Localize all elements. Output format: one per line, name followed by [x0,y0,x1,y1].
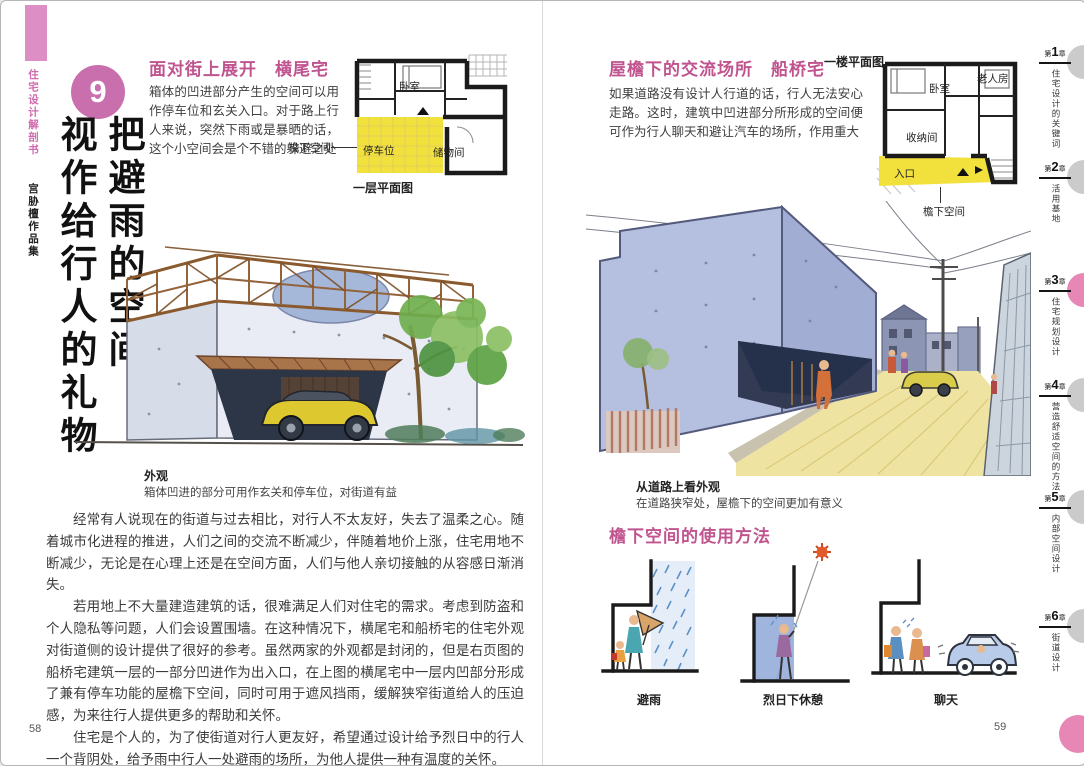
tab-1-label: 住宅设计的关键词 [1050,69,1062,149]
series-title: 住宅设计解剖书 [27,69,39,157]
tab-6-label: 街道设计 [1050,633,1062,673]
tab-4-label: 营造舒适空间的方法 [1050,402,1062,492]
house-illustration-drawing [69,199,531,463]
sidebar-tab-chapter-2: 第2章 活用基地 [1039,158,1073,224]
body-text: 经常有人说现在的街道与过去相比，对行人不太友好，失去了温柔之心。随着城市化进程的… [46,509,524,766]
plan-left-eave-label: 檐下空间 [289,140,331,155]
page-number-left: 58 [29,723,41,735]
tab-5-label: 内部空间设计 [1050,514,1062,574]
plan-right-entrance-label: 入口 [894,166,915,181]
tab-3-header: 第3章 [1039,271,1071,292]
chapter-number-badge: 9 [71,65,125,119]
plan-left-leader-line [331,147,357,148]
usage-rain-drawing [599,553,704,688]
usage-caption-rain: 避雨 [619,691,679,708]
sidebar-tab-chapter-3: 第3章 住宅规划设计 [1039,271,1073,357]
tab-5-header: 第5章 [1039,488,1071,509]
plan-right-storage-label: 收纳间 [906,130,938,145]
page-number-right: 59 [994,721,1006,733]
plan-left-caption: 一层平面图 [353,179,413,196]
usage-illustration-sun [736,539,856,689]
street-illustration-drawing [586,201,1031,476]
body-paragraph: 住宅是个人的，为了使街道对行人更友好，希望通过设计给予烈日中的行人一个背阴处，给… [46,727,524,766]
floor-plan-left [345,51,523,183]
sidebar-tab-chapter-5: 第5章 内部空间设计 [1039,488,1073,574]
usage-caption-chat: 聊天 [916,691,976,708]
usage-illustration-chat [869,553,1019,688]
usage-sun-drawing [736,539,856,689]
plan-right-elder-label: 老人房 [977,71,1009,86]
series-subtitle: 宫胁檀作品集 [26,183,41,258]
corner-accent-circle [1059,715,1084,753]
usage-illustration-rain [599,553,704,688]
tab-1-header: 第1章 [1039,43,1071,64]
sidebar-tab-chapter-1: 第1章 住宅设计的关键词 [1039,43,1073,149]
floor-plan-left-drawing [345,51,523,183]
usage-caption-sun: 烈日下休憩 [743,691,843,708]
plan-right-bedroom-label: 卧室 [929,81,950,96]
page-divider [542,1,543,765]
tab-2-label: 活用基地 [1050,184,1062,224]
book-spread: 住宅设计解剖书 宫胁檀作品集 9 把避雨的空间 视作给行人的礼物 面对街上展开 … [0,0,1084,766]
street-illustration [586,201,1031,476]
right-art-caption-title: 从道路上看外观 [636,478,720,495]
tab-2-header: 第2章 [1039,158,1071,179]
entrance-arrow-icon [417,107,429,115]
house-illustration [69,199,531,463]
body-paragraph: 经常有人说现在的街道与过去相比，对行人不太友好，失去了温柔之心。随着城市化进程的… [46,509,524,596]
spine-accent-bar [25,5,47,61]
plan-left-bedroom-label: 卧室 [399,79,420,94]
section-heading-left: 面对街上展开 横尾宅 [149,55,329,80]
plan-left-storage-label: 储物间 [433,145,465,160]
section-heading-right: 屋檐下的交流场所 船桥宅 [609,55,825,80]
plan-left-parking-label: 停车位 [363,143,395,158]
chapter-number: 9 [89,74,106,110]
right-art-caption-text: 在道路狭窄处，屋檐下的空间更加有意义 [636,495,843,511]
tab-3-label: 住宅规划设计 [1050,297,1062,357]
body-paragraph: 若用地上不大量建造建筑的话，很难满足人们对住宅的需求。考虑到防盗和个人隐私等问题… [46,596,524,727]
section-intro-right: 如果道路没有设计人行道的话，行人无法安心走路。这时，建筑中凹进部分所形成的空间便… [609,85,863,142]
left-art-caption-text: 箱体凹进的部分可用作玄关和停车位，对街道有益 [144,484,397,500]
spine-text: 住宅设计解剖书 宫胁檀作品集 [26,69,41,299]
left-art-caption-title: 外观 [144,467,168,484]
tab-6-header: 第6章 [1039,607,1071,628]
sidebar-tab-chapter-6: 第6章 街道设计 [1039,607,1073,673]
usage-chat-drawing [869,553,1019,688]
tab-4-header: 第4章 [1039,376,1071,397]
sidebar-tab-chapter-4: 第4章 营造舒适空间的方法 [1039,376,1073,492]
